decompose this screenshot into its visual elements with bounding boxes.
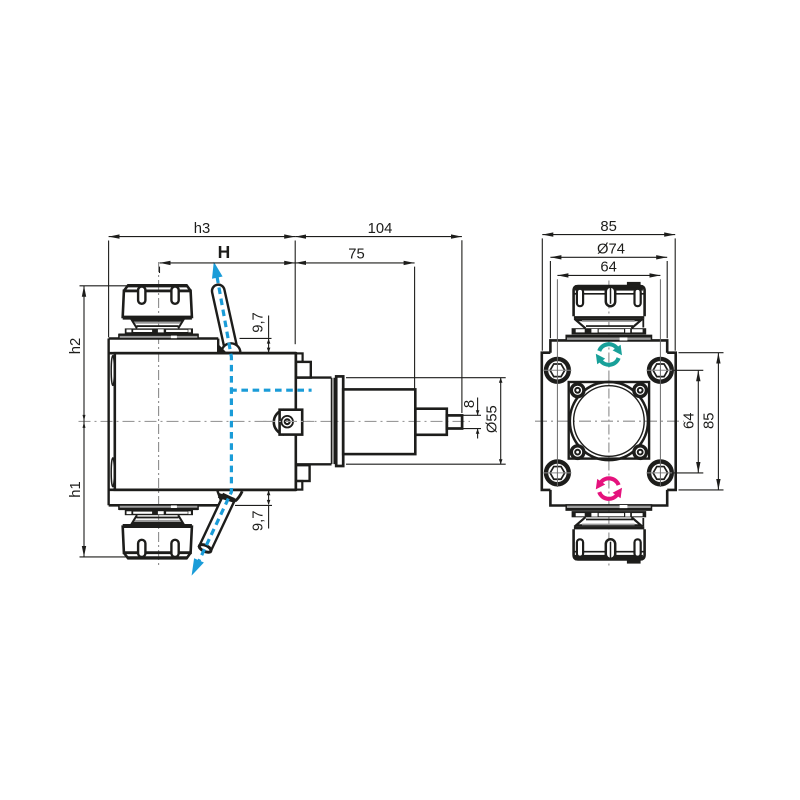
svg-text:h2: h2	[68, 338, 84, 354]
svg-text:h3: h3	[194, 221, 210, 237]
svg-text:8: 8	[462, 400, 478, 408]
svg-text:64: 64	[681, 413, 697, 429]
svg-text:9,7: 9,7	[251, 312, 267, 333]
svg-text:H: H	[218, 242, 231, 262]
svg-text:9,7: 9,7	[251, 511, 267, 532]
svg-text:Ø55: Ø55	[485, 405, 501, 433]
svg-text:85: 85	[600, 219, 616, 235]
svg-text:64: 64	[600, 260, 616, 276]
svg-text:104: 104	[368, 221, 393, 237]
svg-text:Ø74: Ø74	[597, 241, 625, 257]
svg-text:85: 85	[702, 413, 718, 429]
svg-text:h1: h1	[68, 481, 84, 497]
svg-text:75: 75	[348, 247, 364, 263]
